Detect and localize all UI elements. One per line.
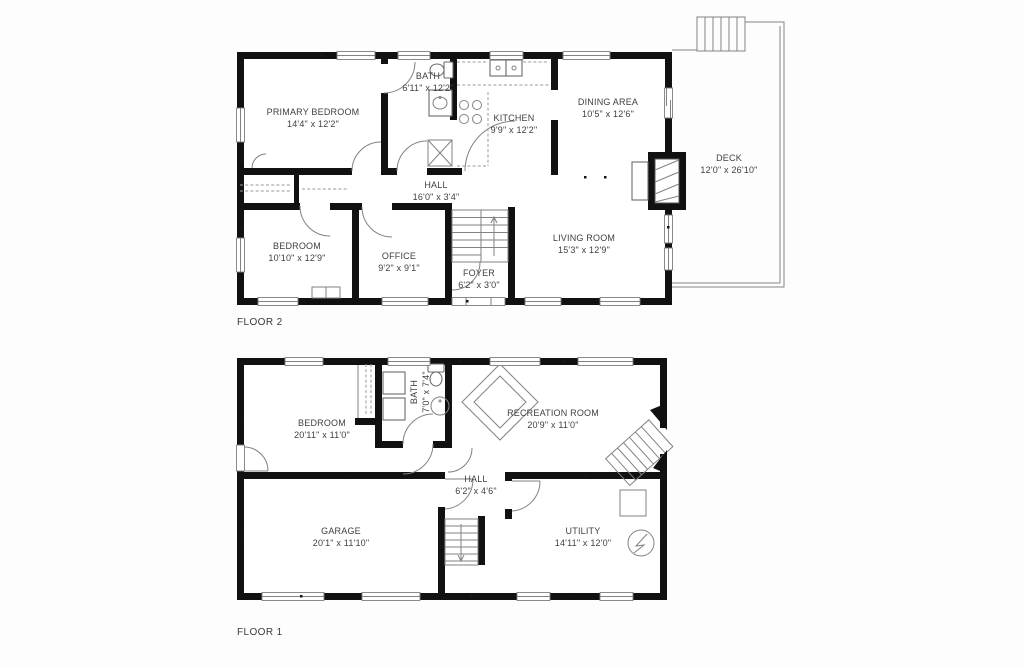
room-label-hall-f1: HALL 6'2" x 4'6": [455, 473, 497, 497]
floor1-label: FLOOR 1: [237, 627, 283, 638]
room-label-office: OFFICE 9'2" x 9'1": [378, 250, 420, 274]
room-label-bath-f1: BATH 7'0" x 7'4": [408, 371, 432, 413]
room-label-bath-f2: BATH 6'11" x 12'2": [402, 70, 453, 94]
room-label-recreation-room: RECREATION ROOM 20'9" x 11'0": [507, 407, 599, 431]
front-door: [452, 298, 505, 306]
room-label-foyer: FOYER 6'2" x 3'0": [458, 267, 500, 291]
kitchen-sink-icon: [490, 60, 522, 76]
room-label-bedroom-f2: BEDROOM 10'10" x 12'9": [268, 240, 325, 264]
floorplan-svg: [0, 0, 1024, 669]
room-label-bedroom-f1: BEDROOM 20'11" x 11'0": [294, 417, 350, 441]
room-label-living-room: LIVING ROOM 15'3" x 12'9": [553, 232, 615, 256]
deck-slider: [665, 88, 673, 118]
room-label-primary-bedroom: PRIMARY BEDROOM 14'4" x 12'2": [267, 106, 360, 130]
floor2-label: FLOOR 2: [237, 317, 283, 328]
room-label-deck: DECK 12'0" x 26'10": [700, 152, 757, 176]
deck-stairs-icon: [697, 17, 745, 51]
room-label-kitchen: KITCHEN 9'9" x 12'2": [491, 112, 538, 136]
room-label-garage: GARAGE 20'1" x 11'10": [313, 525, 370, 549]
room-label-hall-f2: HALL 16'0" x 3'4": [413, 179, 460, 203]
room-label-dining-area: DINING AREA 10'5" x 12'6": [578, 96, 638, 120]
room-label-utility: UTILITY 14'11" x 12'0": [555, 525, 612, 549]
floorplan-image: PRIMARY BEDROOM 14'4" x 12'2" BATH 6'11"…: [0, 0, 1024, 669]
